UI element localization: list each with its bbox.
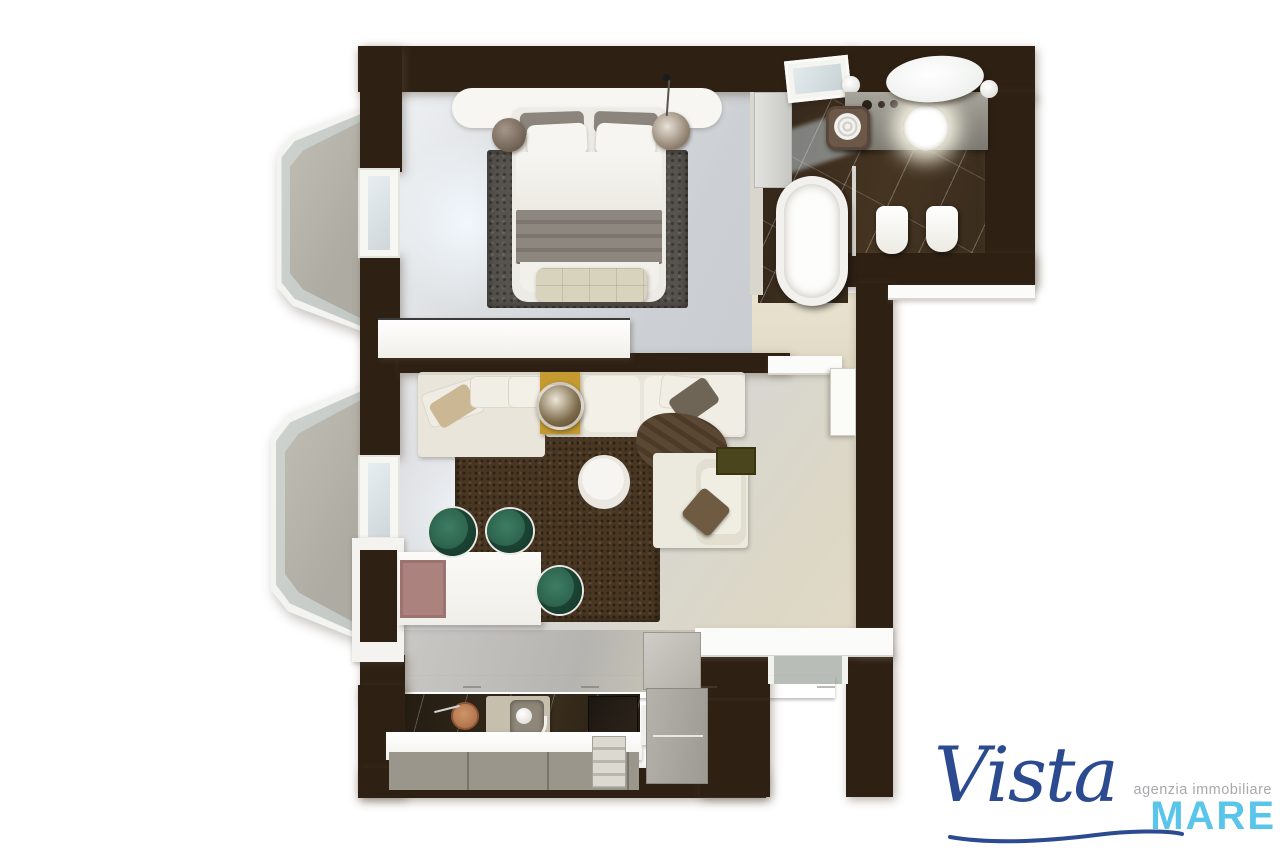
bed-duvet [516, 152, 662, 212]
nightstand-right [652, 112, 690, 150]
vanity-sink [903, 105, 949, 151]
bathroom-glass-door [784, 55, 852, 103]
dining-chair [429, 508, 476, 556]
dining-chair [487, 509, 533, 553]
side-table-top [582, 458, 624, 500]
wall-left-upper [360, 46, 402, 172]
refrigerator-body [646, 688, 708, 784]
wall-entry-right [846, 651, 893, 797]
living-balcony-window [358, 455, 400, 545]
refrigerator-handle [653, 735, 703, 737]
floor-plan-render: Vista agenzia immobiliare MARE [0, 0, 1280, 852]
window-glass [368, 176, 390, 250]
wall-entry-left [700, 645, 770, 797]
shower-partition [852, 166, 856, 256]
refrigerator-top [643, 632, 701, 690]
logo-script-text: Vista [934, 730, 1117, 819]
dining-chair [537, 567, 582, 614]
balcony-top [274, 104, 368, 336]
table-runner-tray [400, 560, 446, 618]
coffee-table [536, 382, 584, 430]
bed-bench [536, 268, 647, 302]
window-glass [368, 463, 390, 537]
agency-logo: Vista agenzia immobiliare MARE [928, 744, 1278, 849]
sideboard [378, 318, 630, 358]
mirror-ball [980, 80, 998, 98]
wall-top [358, 46, 852, 92]
corridor-door [830, 368, 856, 436]
floor-lamp-head [663, 74, 670, 81]
toilet [876, 206, 908, 254]
logo-swoosh [946, 828, 1186, 846]
door-glass [793, 64, 843, 95]
step-stool [592, 736, 626, 788]
cooktop [588, 696, 638, 734]
towel-basket [826, 106, 870, 150]
vanity-accessory-dot [878, 101, 885, 108]
bidet [926, 206, 958, 252]
bedroom-wardrobe [754, 92, 792, 188]
wall-bathroom-bottom [845, 253, 1035, 287]
side-table-round [578, 455, 630, 509]
entry-ledge [695, 628, 893, 657]
bathtub [776, 176, 848, 306]
wall-right [856, 283, 893, 655]
ottoman [716, 447, 756, 475]
rolled-towels [834, 113, 861, 140]
dining-cabinet [352, 538, 404, 662]
bathroom-outer-ledge [888, 285, 1035, 300]
bathtub-basin [784, 184, 840, 298]
bed-blanket [516, 210, 662, 264]
dining-cabinet-open [360, 550, 397, 642]
nightstand-left [492, 118, 526, 152]
sofa-seat-cushion [584, 376, 640, 432]
bedroom-balcony-window [358, 168, 400, 258]
vanity-accessory-dot [890, 100, 898, 108]
